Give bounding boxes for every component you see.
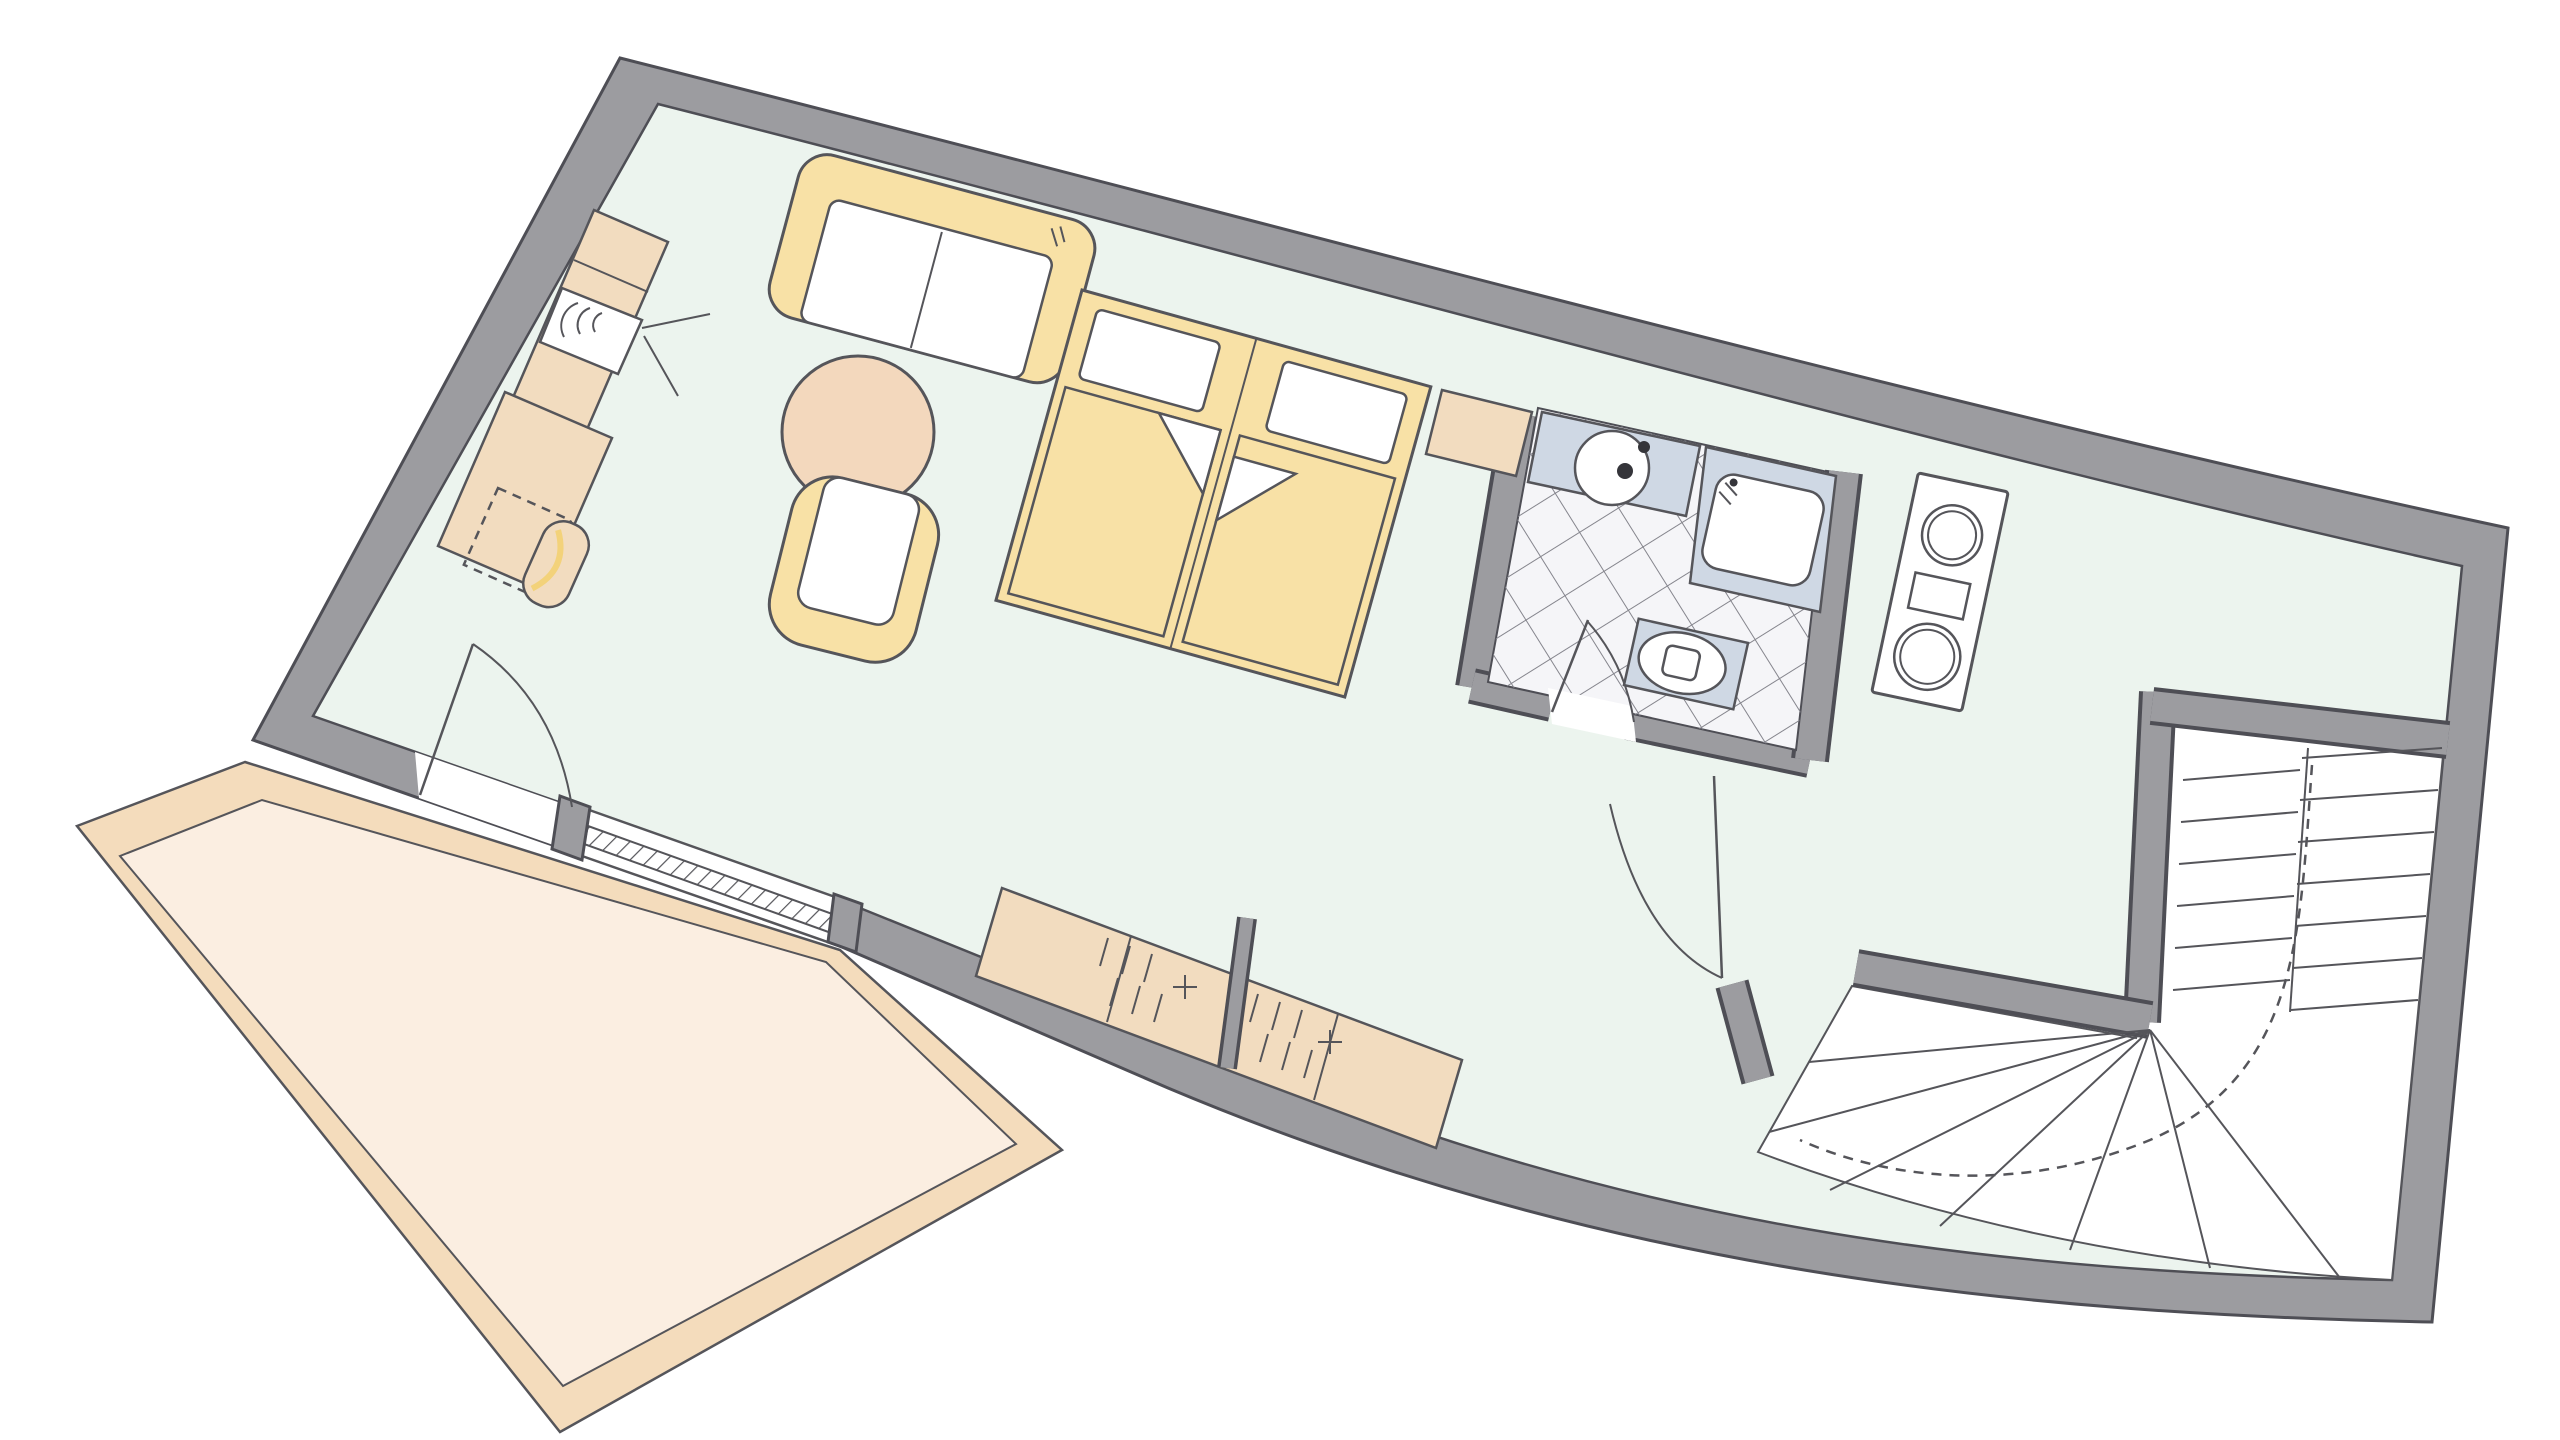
sliding-door-jamb-right bbox=[828, 894, 862, 952]
washbasin-faucet-icon bbox=[1638, 441, 1650, 453]
washbasin-drain-icon bbox=[1617, 463, 1633, 479]
floor-plan-page bbox=[0, 0, 2560, 1440]
floor-plan-image bbox=[0, 0, 2560, 1440]
stair-wall-left bbox=[2142, 692, 2158, 1022]
washbasin bbox=[1575, 431, 1649, 505]
